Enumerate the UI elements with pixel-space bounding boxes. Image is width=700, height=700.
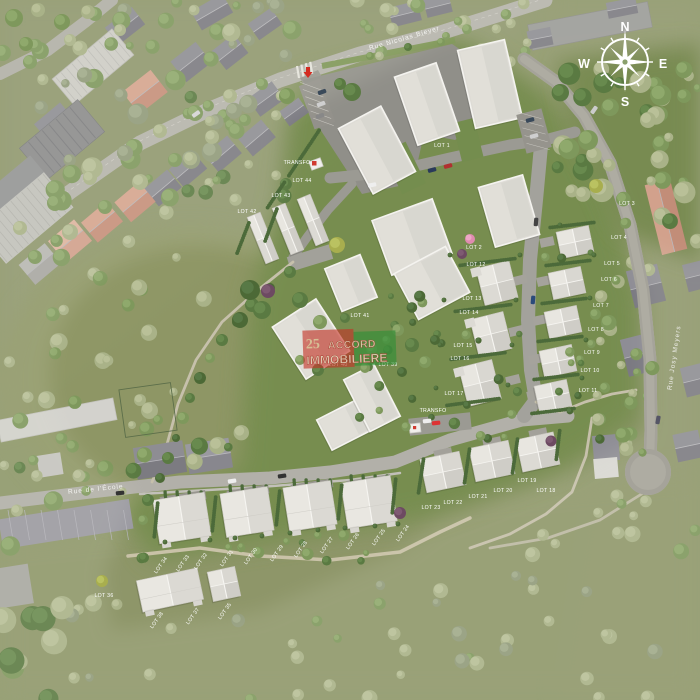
svg-text:ACCORD: ACCORD <box>328 338 376 352</box>
svg-text:W: W <box>578 57 590 71</box>
svg-text:25: 25 <box>306 337 321 352</box>
svg-text:E: E <box>659 57 667 71</box>
svg-text:LOT 22: LOT 22 <box>443 500 462 506</box>
svg-text:LOT 44: LOT 44 <box>292 178 311 184</box>
svg-text:LOT 19: LOT 19 <box>517 478 536 484</box>
svg-text:LOT 20: LOT 20 <box>493 488 512 494</box>
svg-text:LOT 41: LOT 41 <box>350 313 369 319</box>
svg-text:LOT 12: LOT 12 <box>466 262 485 268</box>
svg-text:LOT 43: LOT 43 <box>271 193 290 199</box>
svg-text:LOT 4: LOT 4 <box>611 235 627 241</box>
svg-text:LOT 13: LOT 13 <box>462 296 481 302</box>
svg-text:N: N <box>620 20 629 34</box>
svg-text:LOT 14: LOT 14 <box>459 310 478 316</box>
svg-text:TRANSFO: TRANSFO <box>420 408 447 414</box>
svg-text:LOT 2: LOT 2 <box>466 245 482 251</box>
svg-text:LOT 17: LOT 17 <box>444 391 463 397</box>
svg-text:LOT 42: LOT 42 <box>237 209 256 215</box>
svg-text:LOT 9: LOT 9 <box>584 350 600 356</box>
svg-text:S: S <box>621 95 629 109</box>
svg-text:LOT 23: LOT 23 <box>421 505 440 511</box>
svg-text:LOT 15: LOT 15 <box>453 343 472 349</box>
svg-text:LOT 8: LOT 8 <box>588 327 604 333</box>
svg-text:LOT 21: LOT 21 <box>468 494 487 500</box>
svg-text:LOT 18: LOT 18 <box>536 488 555 494</box>
svg-text:LOT 36: LOT 36 <box>94 593 113 599</box>
svg-text:LOT 16: LOT 16 <box>450 356 469 362</box>
svg-text:IMMOBILIERE: IMMOBILIERE <box>306 351 388 368</box>
svg-text:LOT 1: LOT 1 <box>434 143 450 149</box>
svg-text:TRANSFO: TRANSFO <box>284 160 311 166</box>
svg-text:LOT 6: LOT 6 <box>601 277 617 283</box>
svg-text:LOT 5: LOT 5 <box>604 261 620 267</box>
svg-text:LOT 11: LOT 11 <box>579 388 598 394</box>
svg-text:LOT 10: LOT 10 <box>580 368 599 374</box>
svg-text:LOT 3: LOT 3 <box>619 201 635 207</box>
svg-text:LOT 7: LOT 7 <box>593 303 609 309</box>
